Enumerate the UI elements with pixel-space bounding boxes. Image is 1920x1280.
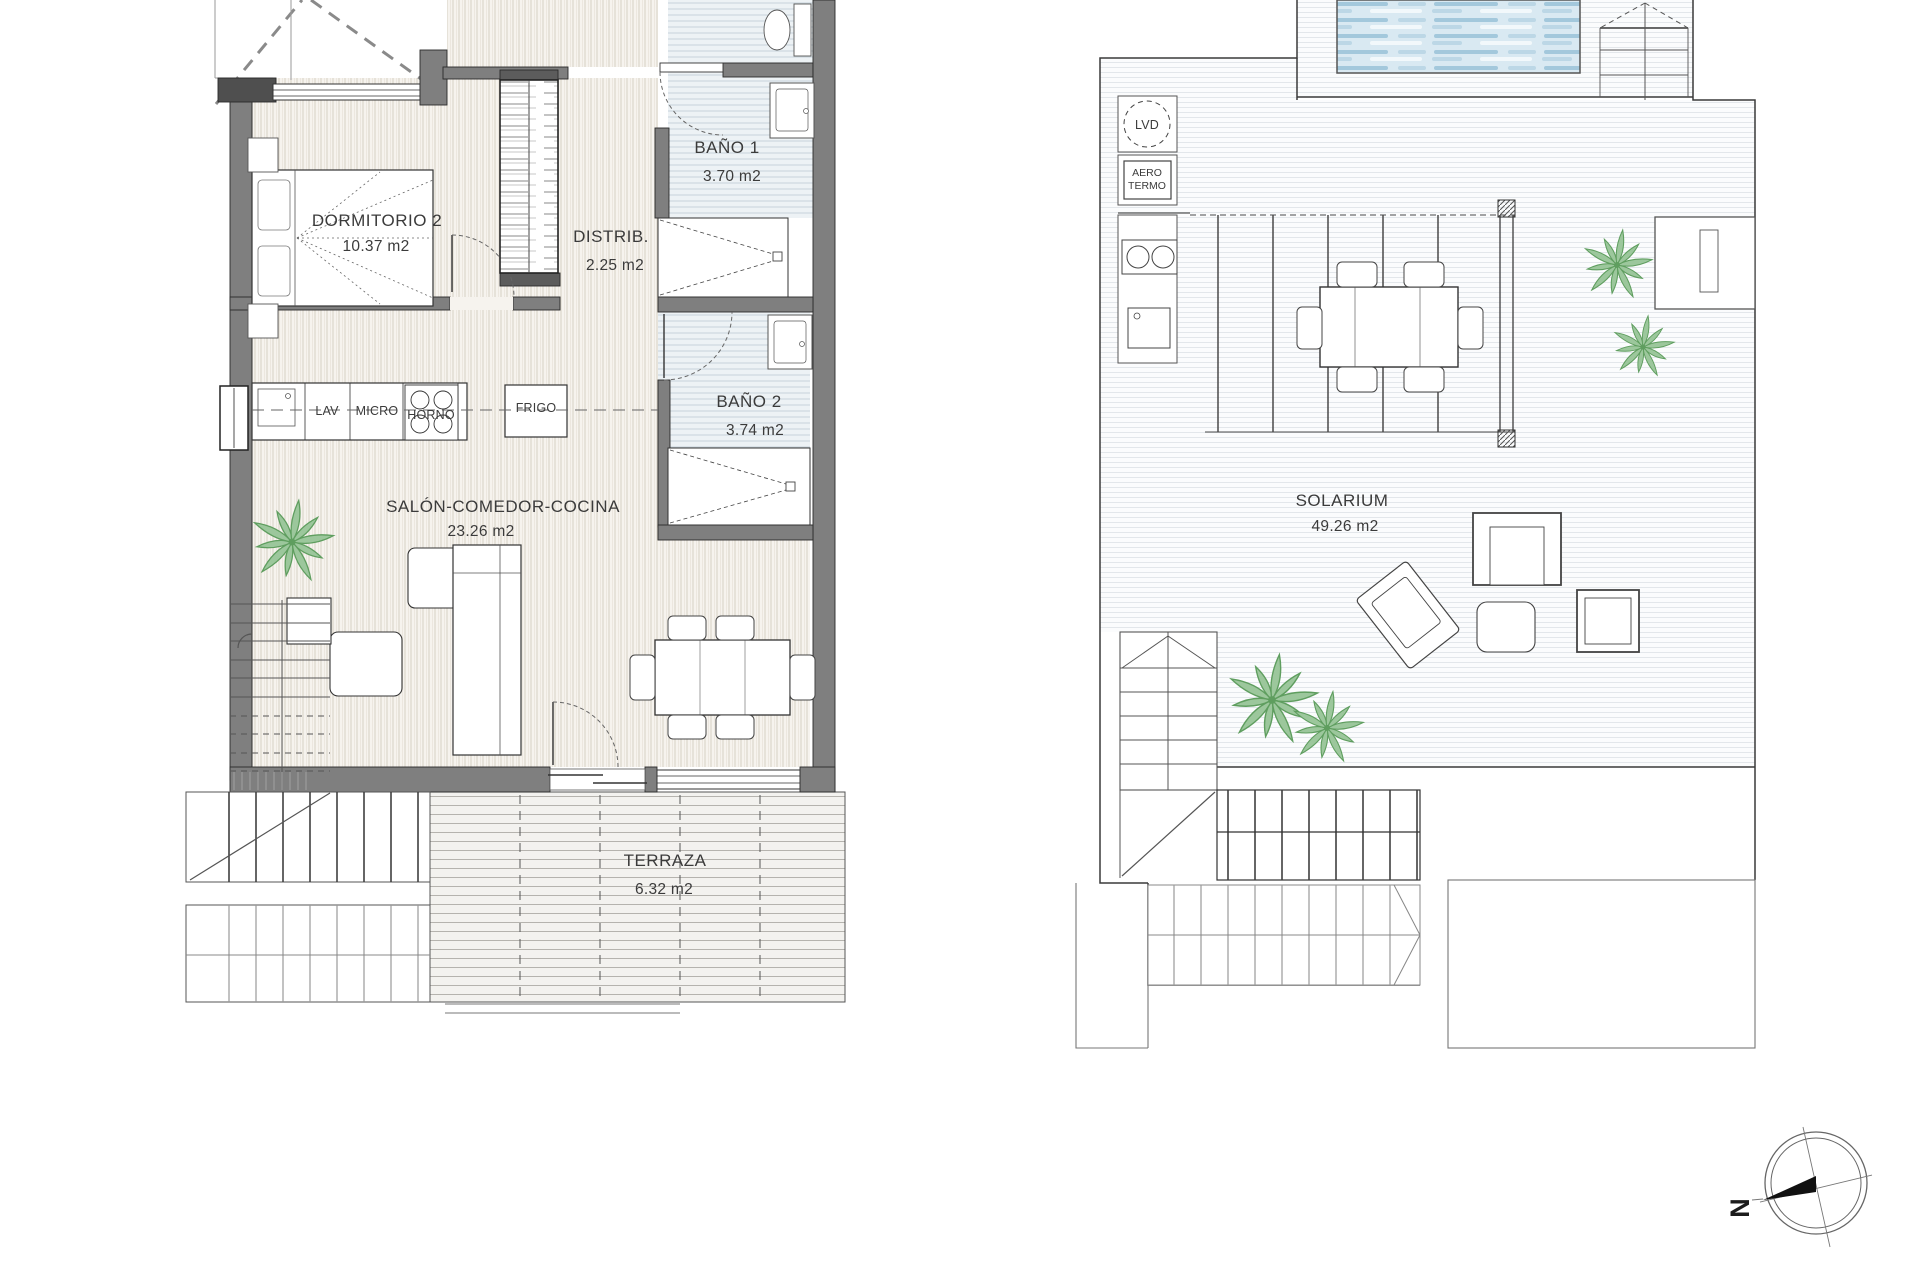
railing (1217, 790, 1420, 880)
shower-tray (658, 218, 788, 297)
side-window (220, 386, 248, 450)
appliance-label-frigo: FRIGO (516, 401, 557, 415)
equipment-label-termo: TERMO (1128, 180, 1166, 192)
railing (186, 905, 430, 1002)
washbasin-icon (770, 83, 814, 138)
appliance-label-lav: LAV (315, 404, 339, 418)
sun-lounger (1473, 513, 1561, 585)
right-plan (1076, 0, 1755, 1048)
room-area-solarium: 49.26 m2 (1311, 518, 1378, 535)
room-label-bano2: BAÑO 2 (716, 392, 781, 411)
floor-plan-drawing: DORMITORIO 2 10.37 m2 DISTRIB. 2.25 m2 B… (0, 0, 1920, 1280)
living-window (657, 770, 800, 789)
room-label-bano1: BAÑO 1 (694, 138, 759, 157)
top-room-floor (447, 0, 658, 67)
terrace-sliding-door (548, 769, 647, 790)
hob-icon (1122, 240, 1177, 274)
room-label-dormitorio: DORMITORIO 2 (312, 211, 442, 230)
shower-tray (668, 448, 810, 525)
washbasin-icon (768, 315, 812, 369)
kitchen-sink-icon (258, 389, 295, 426)
room-label-terraza: TERRAZA (624, 851, 707, 870)
equipment-label-aero: AERO (1132, 167, 1162, 179)
appliance-label-micro: MICRO (356, 404, 399, 418)
sink-icon (1128, 308, 1170, 348)
beam-end (1498, 200, 1515, 217)
beam-end (1498, 430, 1515, 447)
solarium-floor (1297, 100, 1755, 767)
room-label-solarium: SOLARIUM (1296, 491, 1389, 510)
floor-plan-canvas: DORMITORIO 2 10.37 m2 DISTRIB. 2.25 m2 B… (0, 0, 1920, 1280)
side-table (1477, 602, 1535, 652)
room-area-distrib: 2.25 m2 (586, 257, 644, 274)
equipment-label-lvd: LVD (1135, 118, 1159, 132)
planter (1655, 217, 1755, 309)
room-area-terraza: 6.32 m2 (635, 881, 693, 898)
room-label-salon: SALÓN-COMEDOR-COCINA (386, 497, 620, 516)
carport-outline (215, 0, 291, 80)
compass-north-label: N (1725, 1198, 1755, 1218)
railing (1148, 885, 1420, 985)
railing (186, 792, 430, 882)
room-label-distrib: DISTRIB. (573, 227, 649, 246)
room-area-dormitorio: 10.37 m2 (342, 238, 409, 255)
appliance-label-horno: HORNO (407, 408, 455, 422)
stair-tower (1120, 632, 1217, 880)
nightstand (248, 304, 278, 338)
compass-icon (1752, 1127, 1872, 1247)
room-area-bano1: 3.70 m2 (703, 168, 761, 185)
nightstand (248, 138, 278, 172)
terrace-step-edge (445, 1004, 680, 1013)
wardrobe-icon (500, 80, 558, 273)
pool (1337, 0, 1580, 73)
room-area-bano2: 3.74 m2 (726, 422, 784, 439)
room-area-salon: 23.26 m2 (447, 523, 514, 540)
sun-lounger (1577, 590, 1639, 652)
sofa (453, 545, 521, 755)
bedroom-window (273, 84, 420, 100)
